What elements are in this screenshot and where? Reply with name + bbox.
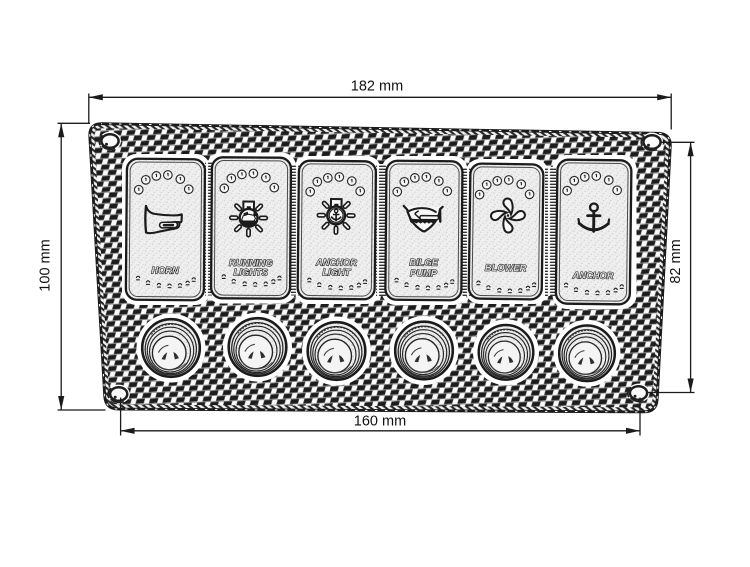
- svg-text:HORN: HORN: [151, 265, 179, 275]
- svg-text:BILGE: BILGE: [409, 257, 438, 267]
- svg-text:BLOWER: BLOWER: [485, 263, 527, 274]
- svg-text:ANCHOR: ANCHOR: [315, 257, 357, 267]
- svg-text:100 mm: 100 mm: [38, 239, 54, 291]
- svg-text:ANCHOR: ANCHOR: [572, 270, 614, 281]
- svg-text:LIGHT: LIGHT: [322, 267, 351, 277]
- svg-text:160 mm: 160 mm: [354, 414, 406, 430]
- svg-text:LIGHTS: LIGHTS: [234, 267, 269, 277]
- svg-text:182 mm: 182 mm: [351, 79, 403, 95]
- svg-text:PUMP: PUMP: [410, 268, 438, 278]
- svg-text:82 mm: 82 mm: [668, 239, 684, 283]
